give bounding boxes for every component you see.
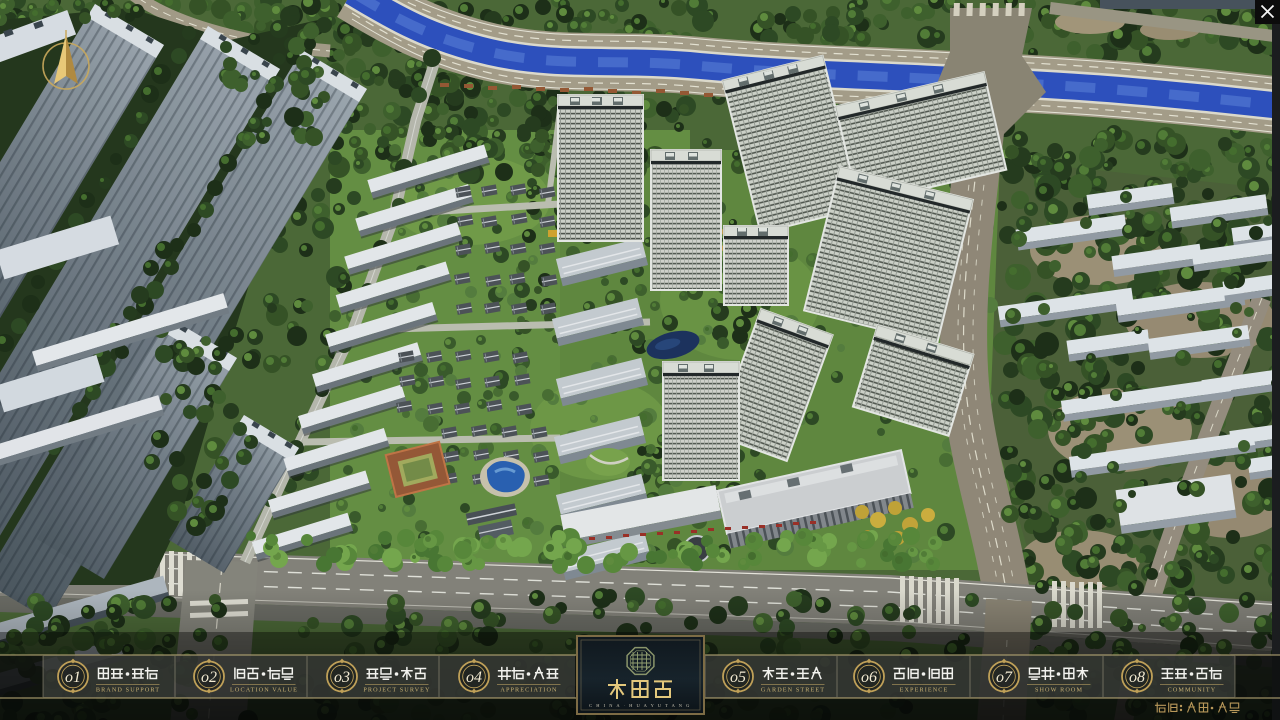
svg-text:o2: o2 — [201, 669, 217, 686]
svg-text:C H I N A · H U A Y U T A N G: C H I N A · H U A Y U T A N G — [589, 703, 691, 708]
svg-text:o7: o7 — [996, 669, 1013, 686]
svg-text:APPRECIATION: APPRECIATION — [500, 687, 557, 694]
svg-text:GARDEN STREET: GARDEN STREET — [761, 687, 825, 694]
svg-text:BRAND SUPPORT: BRAND SUPPORT — [96, 687, 160, 694]
svg-text:o3: o3 — [334, 669, 350, 686]
svg-text:o8: o8 — [1129, 669, 1145, 686]
svg-text:o5: o5 — [730, 669, 746, 686]
svg-text:COMMUNITY: COMMUNITY — [1168, 687, 1217, 694]
svg-text:EXPERIENCE: EXPERIENCE — [900, 687, 949, 694]
svg-text:LOCATION VALUE: LOCATION VALUE — [230, 687, 298, 694]
svg-text:SHOW ROOM: SHOW ROOM — [1035, 687, 1083, 694]
svg-text:o4: o4 — [466, 669, 482, 686]
svg-text:o6: o6 — [861, 669, 877, 686]
svg-text:PROJECT SURVEY: PROJECT SURVEY — [363, 687, 430, 694]
svg-text:o1: o1 — [65, 669, 81, 686]
